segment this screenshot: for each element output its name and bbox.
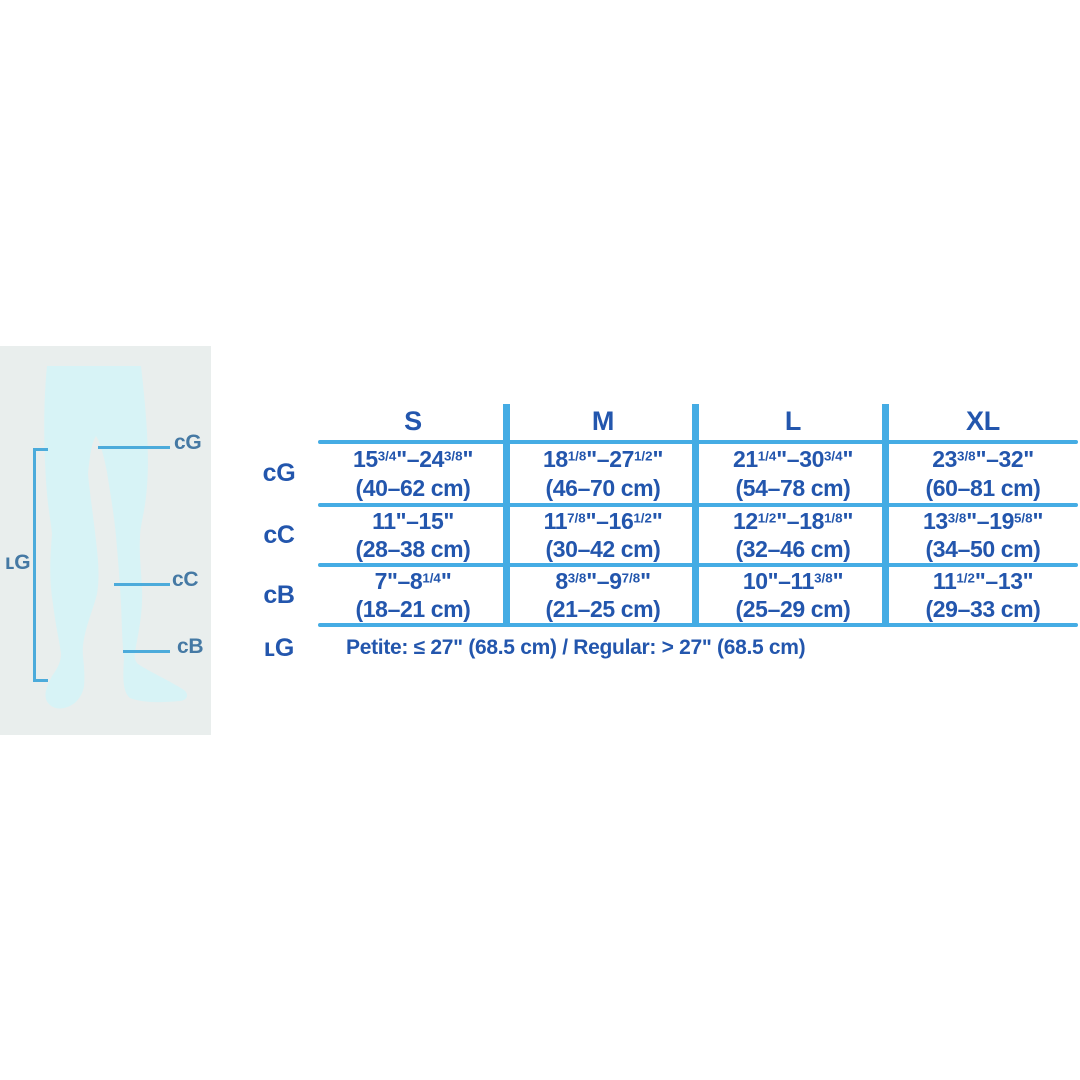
table-row-cg: cG 153/4"–243/8" (40–62 cm) 181/8"–271/2…: [240, 444, 1078, 503]
table-row-cc: cC 11"–15" (28–38 cm) 117/8"–161/2" (30–…: [240, 507, 1078, 563]
ankle-measure-line: [123, 650, 170, 653]
cell-cg-m: 181/8"–271/2" (46–70 cm): [508, 445, 698, 501]
diagram-label-lg: ʟG: [5, 552, 30, 573]
cell-cm: (60–81 cm): [888, 474, 1078, 502]
leg-length-bracket-top-tick: [33, 448, 48, 451]
cell-inches: 10"–113/8": [698, 567, 888, 595]
cell-cb-s: 7"–81/4" (18–21 cm): [318, 567, 508, 623]
cell-cm: (54–78 cm): [698, 474, 888, 502]
row-label-lg: ʟG: [240, 634, 318, 663]
diagram-label-cb: cB: [177, 636, 203, 657]
cell-cm: (46–70 cm): [508, 474, 698, 502]
grid-line-vertical: [882, 404, 889, 626]
row-label-cg: cG: [240, 459, 318, 488]
table-row-cb: cB 7"–81/4" (18–21 cm) 83/8"–97/8" (21–2…: [240, 567, 1078, 623]
grid-line-vertical: [692, 404, 699, 626]
cell-cm: (29–33 cm): [888, 595, 1078, 623]
cell-inches: 7"–81/4": [318, 567, 508, 595]
cell-inches: 153/4"–243/8": [318, 445, 508, 473]
row-label-cc: cC: [240, 521, 318, 550]
leg-length-bracket-bottom-tick: [33, 679, 48, 682]
table-row-lg: ʟG Petite: ≤ 27" (68.5 cm) / Regular: > …: [240, 627, 1078, 667]
cell-cm: (30–42 cm): [508, 535, 698, 563]
cell-inches: 11"–15": [318, 507, 508, 535]
cell-cc-s: 11"–15" (28–38 cm): [318, 507, 508, 563]
cell-inches: 133/8"–195/8": [888, 507, 1078, 535]
cell-cc-m: 117/8"–161/2" (30–42 cm): [508, 507, 698, 563]
legs-silhouette: [0, 346, 211, 735]
calf-measure-line: [114, 583, 170, 586]
cell-inches: 121/2"–181/8": [698, 507, 888, 535]
thigh-measure-line: [98, 446, 170, 449]
cell-inches: 211/4"–303/4": [698, 445, 888, 473]
leg-length-note: Petite: ≤ 27" (68.5 cm) / Regular: > 27"…: [318, 636, 805, 660]
leg-length-bracket: [33, 448, 36, 682]
row-label-cb: cB: [240, 581, 318, 610]
cell-inches: 117/8"–161/2": [508, 507, 698, 535]
cell-inches: 181/8"–271/2": [508, 445, 698, 473]
cell-inches: 233/8"–32": [888, 445, 1078, 473]
cell-cb-xl: 111/2"–13" (29–33 cm): [888, 567, 1078, 623]
cell-cm: (25–29 cm): [698, 595, 888, 623]
cell-cm: (40–62 cm): [318, 474, 508, 502]
diagram-label-cg: cG: [174, 432, 201, 453]
cell-cg-s: 153/4"–243/8" (40–62 cm): [318, 445, 508, 501]
cell-cm: (32–46 cm): [698, 535, 888, 563]
cell-cm: (28–38 cm): [318, 535, 508, 563]
grid-line-vertical: [503, 404, 510, 626]
cell-cg-l: 211/4"–303/4" (54–78 cm): [698, 445, 888, 501]
column-header-xl: XL: [888, 406, 1078, 437]
cell-cm: (21–25 cm): [508, 595, 698, 623]
cell-cc-l: 121/2"–181/8" (32–46 cm): [698, 507, 888, 563]
diagram-label-cc: cC: [172, 569, 198, 590]
leg-diagram-panel: [0, 346, 211, 735]
cell-cb-l: 10"–113/8" (25–29 cm): [698, 567, 888, 623]
cell-cm: (34–50 cm): [888, 535, 1078, 563]
cell-cg-xl: 233/8"–32" (60–81 cm): [888, 445, 1078, 501]
cell-cc-xl: 133/8"–195/8" (34–50 cm): [888, 507, 1078, 563]
column-header-m: M: [508, 406, 698, 437]
column-header-s: S: [318, 406, 508, 437]
table-header-row: S M L XL: [240, 402, 1078, 440]
cell-inches: 111/2"–13": [888, 567, 1078, 595]
cell-inches: 83/8"–97/8": [508, 567, 698, 595]
cell-cm: (18–21 cm): [318, 595, 508, 623]
column-header-l: L: [698, 406, 888, 437]
size-table: S M L XL cG 153/4"–243/8" (40–62 cm) 181…: [240, 402, 1078, 667]
cell-cb-m: 83/8"–97/8" (21–25 cm): [508, 567, 698, 623]
